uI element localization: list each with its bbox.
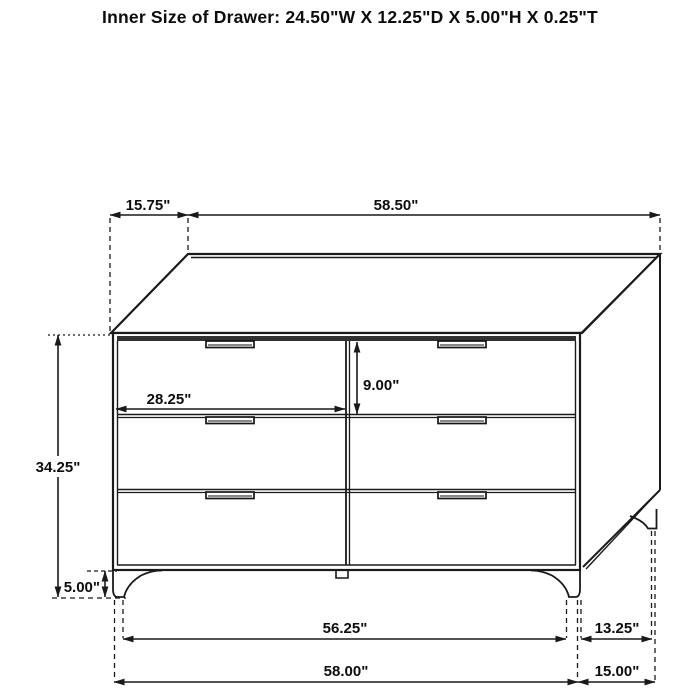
top-rail (117, 336, 576, 341)
dim-label-leg-span-depth: 13.25" (595, 620, 640, 637)
dim-label-overall-height: 34.25" (36, 459, 81, 476)
legs (113, 570, 580, 597)
dim-label-overall-depth: 15.00" (595, 663, 640, 680)
side-panel-bottom-inner-edge (586, 493, 657, 569)
dim-label-drawer-width: 28.25" (147, 391, 192, 408)
drawer-handle (206, 492, 254, 499)
dim-label-top-width: 58.50" (374, 197, 419, 214)
drawer-handle (438, 417, 486, 424)
dim-label-overall-width: 58.00" (324, 663, 369, 680)
front-left-leg (113, 570, 162, 597)
rear-right-leg (630, 509, 657, 529)
drawer-handle (206, 417, 254, 424)
dresser-front-face (113, 333, 580, 570)
drawer-handle (438, 341, 486, 348)
top-surface-outline (111, 254, 660, 333)
dresser-drawing: 15.75" 58.50" (0, 0, 700, 700)
dim-label-drawer-height: 9.00" (363, 377, 399, 394)
dim-label-leg-height: 5.00" (64, 579, 100, 596)
front-right-leg (531, 570, 580, 597)
center-support (336, 570, 348, 578)
dimension-diagram: Inner Size of Drawer: 24.50"W X 12.25"D … (0, 0, 700, 700)
drawer-handle (206, 341, 254, 348)
dresser-top-surface (111, 254, 660, 333)
dim-label-leg-span-width: 56.25" (323, 620, 368, 637)
drawer-handle (438, 492, 486, 499)
dim-label-top-depth-offset: 15.75" (126, 197, 171, 214)
